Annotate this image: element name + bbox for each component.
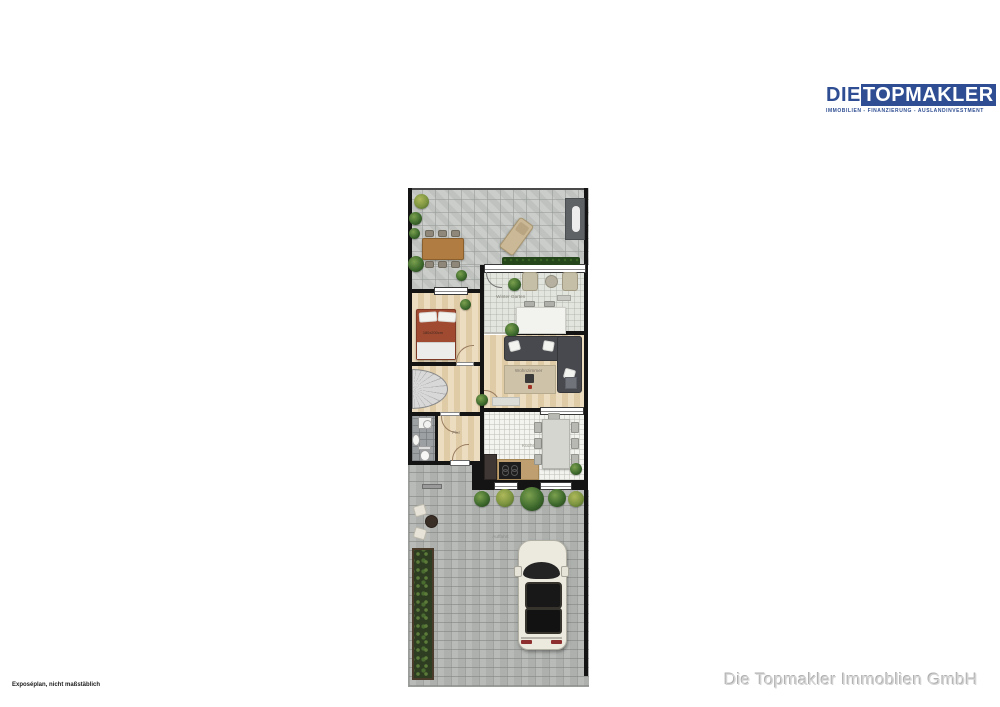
logo-die-text: DIE: [826, 84, 861, 106]
room-label-wintergarden: Winter Garten: [496, 295, 525, 300]
lounger-backrest: [515, 222, 530, 237]
bedroom-window: [434, 287, 468, 295]
kitchen-chair: [534, 422, 542, 433]
sofa-pillow: [542, 340, 555, 352]
terrace-plant: [414, 194, 429, 209]
car-rear-window: [525, 608, 562, 634]
company-name-watermark: Die Topmakler Immoblien GmbH: [724, 670, 978, 690]
kitchen-table: [542, 419, 570, 469]
hedge-row: [502, 257, 580, 265]
bed-pillow: [438, 311, 457, 322]
fridge: [484, 454, 497, 480]
car-taillight: [551, 640, 562, 644]
room-label-kitchen: Küche: [522, 444, 535, 449]
terrace-plant: [456, 270, 467, 281]
wall-right: [584, 188, 588, 676]
car-sunroof: [525, 582, 562, 609]
washing-machine: [418, 417, 432, 429]
wintergarden-plant: [505, 323, 519, 337]
terrace-chair: [451, 261, 460, 268]
terrace-plant: [409, 212, 422, 225]
terrace-chair: [425, 261, 434, 268]
car-mirror: [561, 566, 569, 577]
burner-icon: [502, 469, 509, 476]
logo-topmakler-text: TOPMAKLER: [861, 84, 996, 106]
burner-icon: [511, 469, 518, 476]
logo-subtitle: IMMOBILIEN - FINANZIERUNG - AUSLANDINVES…: [826, 108, 976, 114]
logo-wordmark: DIE TOPMAKLER: [826, 84, 976, 106]
coffee-table: [525, 374, 534, 383]
sideboard: [492, 397, 520, 406]
wall-bath-corridor: [435, 416, 438, 461]
bedroom-plant: [460, 299, 471, 310]
bush: [474, 491, 490, 507]
wintergarden-plant: [508, 278, 521, 291]
car-windshield: [523, 562, 560, 579]
floorplan: Winter Garten 180x200cm Wohnzimmer Flur: [408, 188, 588, 688]
wicker-armchair: [562, 272, 578, 291]
terrace-chair: [438, 261, 447, 268]
terrace-plant: [409, 228, 420, 239]
room-label-corridor: Flur: [452, 431, 460, 436]
wintergarden-table: [516, 307, 566, 334]
disclaimer-note: Exposéplan, nicht maßstäblich: [12, 682, 100, 688]
car-bumper-line: [521, 637, 562, 639]
bed-pillow: [419, 311, 438, 322]
terrace-chair: [425, 230, 434, 237]
terrace-chair: [438, 230, 447, 237]
wintergarden-side-table: [545, 275, 558, 288]
kitchen-plant: [570, 463, 582, 475]
bush: [496, 489, 514, 507]
car: [518, 540, 565, 648]
wicker-armchair: [522, 272, 538, 291]
wintergarden-bench: [557, 295, 571, 301]
bush: [520, 487, 544, 511]
car-mirror: [514, 566, 522, 577]
bush: [568, 491, 584, 507]
tv-unit: [565, 377, 577, 389]
grill-lid: [572, 206, 580, 232]
room-label-living: Wohnzimmer: [515, 369, 542, 374]
bush: [548, 489, 566, 507]
kitchen-pass-window: [540, 407, 584, 415]
kitchen-chair: [534, 438, 542, 449]
living-plant: [476, 394, 488, 406]
rug-decor: [528, 385, 532, 389]
terrace-plant: [408, 256, 424, 272]
wall-living-kitchen: [480, 408, 542, 412]
entry-step: [422, 484, 442, 489]
bistro-table: [425, 515, 438, 528]
kitchen-chair: [534, 454, 542, 465]
toilet-bowl: [420, 450, 430, 461]
washer-door-icon: [423, 420, 432, 429]
terrace-chair: [451, 230, 460, 237]
wall-terrace-top: [408, 188, 588, 190]
stove-cooktop: [499, 462, 521, 479]
car-taillight: [521, 640, 532, 644]
bathroom-sink: [412, 434, 420, 446]
terrace-dining-table: [422, 238, 464, 260]
company-logo: DIE TOPMAKLER IMMOBILIEN - FINANZIERUNG …: [826, 84, 976, 116]
bed: 180x200cm: [416, 309, 456, 360]
grill-station: [565, 198, 585, 240]
bed-size-label: 180x200cm: [423, 331, 443, 336]
kitchen-chair: [571, 438, 579, 449]
driveway-label: Auffahrt: [492, 535, 508, 540]
sofa-pillow: [508, 340, 521, 352]
kitchen-chair: [571, 422, 579, 433]
bed-blanket: [417, 342, 455, 359]
flower-bed: [412, 548, 434, 680]
